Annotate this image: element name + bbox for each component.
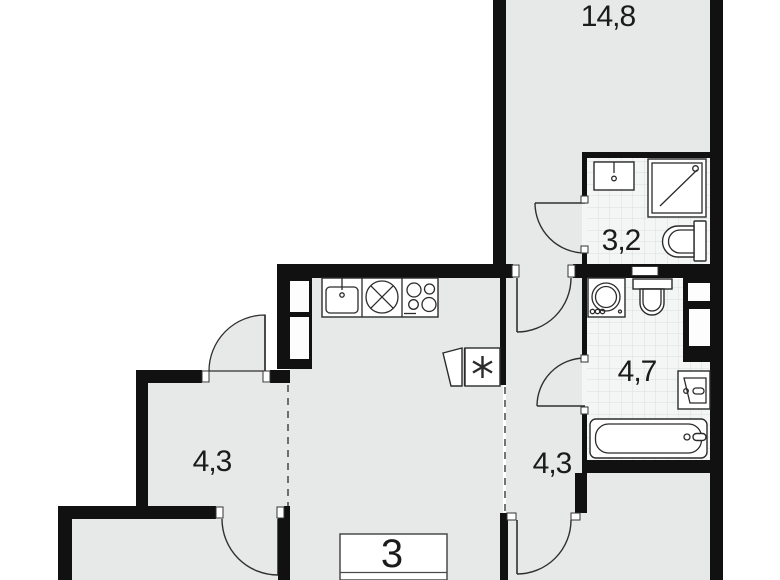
door-jamb: [277, 507, 284, 518]
bottom-right-room-floor-upper: [587, 473, 710, 520]
washbasin-large-bath-icon: [678, 371, 710, 409]
wall-living-left: [493, 0, 506, 264]
washing-machine-icon: [588, 278, 625, 317]
storage-room-area-label: 4,3: [193, 445, 232, 478]
kitchen-counter: [322, 278, 438, 317]
washbasin-small-bath-icon: [594, 162, 634, 190]
wall-bathroom-large-bottom: [582, 460, 723, 473]
wall-bathroom-left-c: [582, 414, 587, 460]
shower-cabin-icon: [648, 159, 706, 217]
hallway-area-label: 4,3: [533, 447, 572, 480]
door-jamb: [581, 407, 588, 414]
floor-plan-page: 14,8 3,2 4,7 4,3 4,3 3: [0, 0, 780, 580]
wall-bathroom-left-a: [582, 158, 587, 196]
ventilation-shaft-niche: [689, 309, 710, 346]
wall-vent-hatch: [632, 267, 658, 276]
vent-duct-icon: [443, 348, 500, 386]
wall-bathroom-small-top: [582, 152, 710, 158]
ventilation-shaft-niche: [688, 283, 710, 301]
door-gap-floor: [582, 203, 587, 246]
bottom-left-room-floor: [72, 518, 278, 580]
wall-storage-top-left: [136, 370, 202, 383]
door-jamb: [507, 513, 516, 520]
door-jamb: [512, 265, 519, 277]
wall-hallway-left: [500, 277, 506, 385]
bathroom-large-area-label: 4,7: [618, 355, 657, 388]
wall-niche: [290, 281, 309, 312]
wall-bottom-left-h: [58, 506, 216, 519]
door-jamb: [263, 371, 270, 382]
door-jamb: [568, 265, 575, 277]
wall-hallway-left-bottom: [500, 513, 508, 580]
door-jamb: [581, 355, 588, 362]
living-room-area-label: 14,8: [581, 0, 636, 33]
wall-bottom-left-v: [278, 513, 290, 580]
wall-storage-top-right: [270, 370, 290, 383]
wall-kitchen-top: [277, 264, 513, 278]
wall-divider-below-bathroom: [575, 473, 587, 513]
apartment-number: 3: [381, 532, 403, 576]
door-jamb: [581, 196, 588, 203]
floor-plan: 14,8 3,2 4,7 4,3 4,3 3: [0, 0, 780, 580]
door-jamb: [202, 371, 209, 382]
door-gap-floor: [223, 506, 277, 519]
wall-storage-left: [136, 383, 148, 507]
wall-niche: [290, 317, 309, 359]
door-gap-floor: [208, 370, 263, 384]
bathroom-small-area-label: 3,2: [602, 224, 641, 257]
apartment-number-box: 3: [340, 532, 447, 580]
door-jamb: [581, 246, 588, 253]
bathtub-icon: [590, 419, 707, 458]
door-jamb: [216, 507, 223, 518]
wall-bathroom-left-b: [582, 253, 587, 355]
door-gap-floor: [582, 362, 587, 407]
wall-outer-bottom-left: [58, 506, 72, 580]
door-gap-floor: [518, 264, 569, 278]
door-jamb: [571, 513, 580, 520]
